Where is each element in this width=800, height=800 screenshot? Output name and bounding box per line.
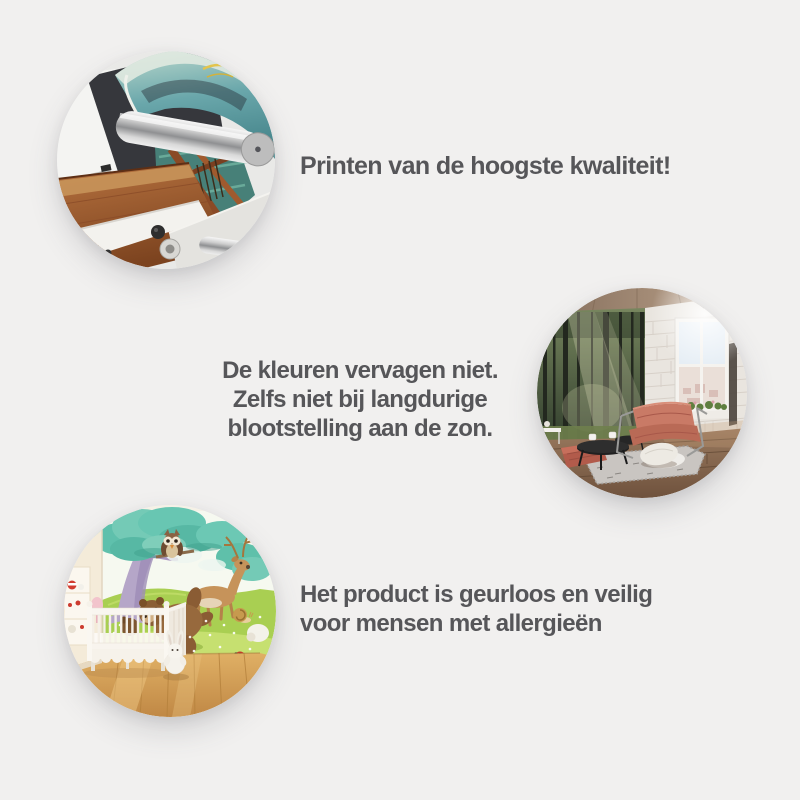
feature-1-caption: Printen van de hoogste kwaliteit! bbox=[300, 151, 671, 181]
interior-illustration bbox=[537, 288, 747, 498]
photo-nursery-mural bbox=[64, 505, 276, 717]
caption-line: Het product is geurloos en veilig bbox=[300, 580, 652, 609]
caption-line: Zelfs niet bij langdurige bbox=[179, 385, 541, 414]
caption-line: De kleuren vervagen niet. bbox=[179, 356, 541, 385]
feature-2-caption: De kleuren vervagen niet. Zelfs niet bij… bbox=[179, 356, 541, 443]
caption-line: voor mensen met allergieën bbox=[300, 609, 652, 638]
caption-line: Printen van de hoogste kwaliteit! bbox=[300, 151, 671, 181]
toy-shelf bbox=[64, 567, 90, 645]
caption-line: blootstelling aan de zon. bbox=[179, 414, 541, 443]
printing-machine-illustration bbox=[57, 51, 275, 269]
photo-printing-machine bbox=[57, 51, 275, 269]
product-infographic: Printen van de hoogste kwaliteit! De kle… bbox=[0, 0, 800, 800]
nursery-illustration bbox=[64, 505, 276, 717]
photo-interior-forest-mural bbox=[537, 288, 747, 498]
feature-3-caption: Het product is geurloos en veilig voor m… bbox=[300, 580, 652, 638]
